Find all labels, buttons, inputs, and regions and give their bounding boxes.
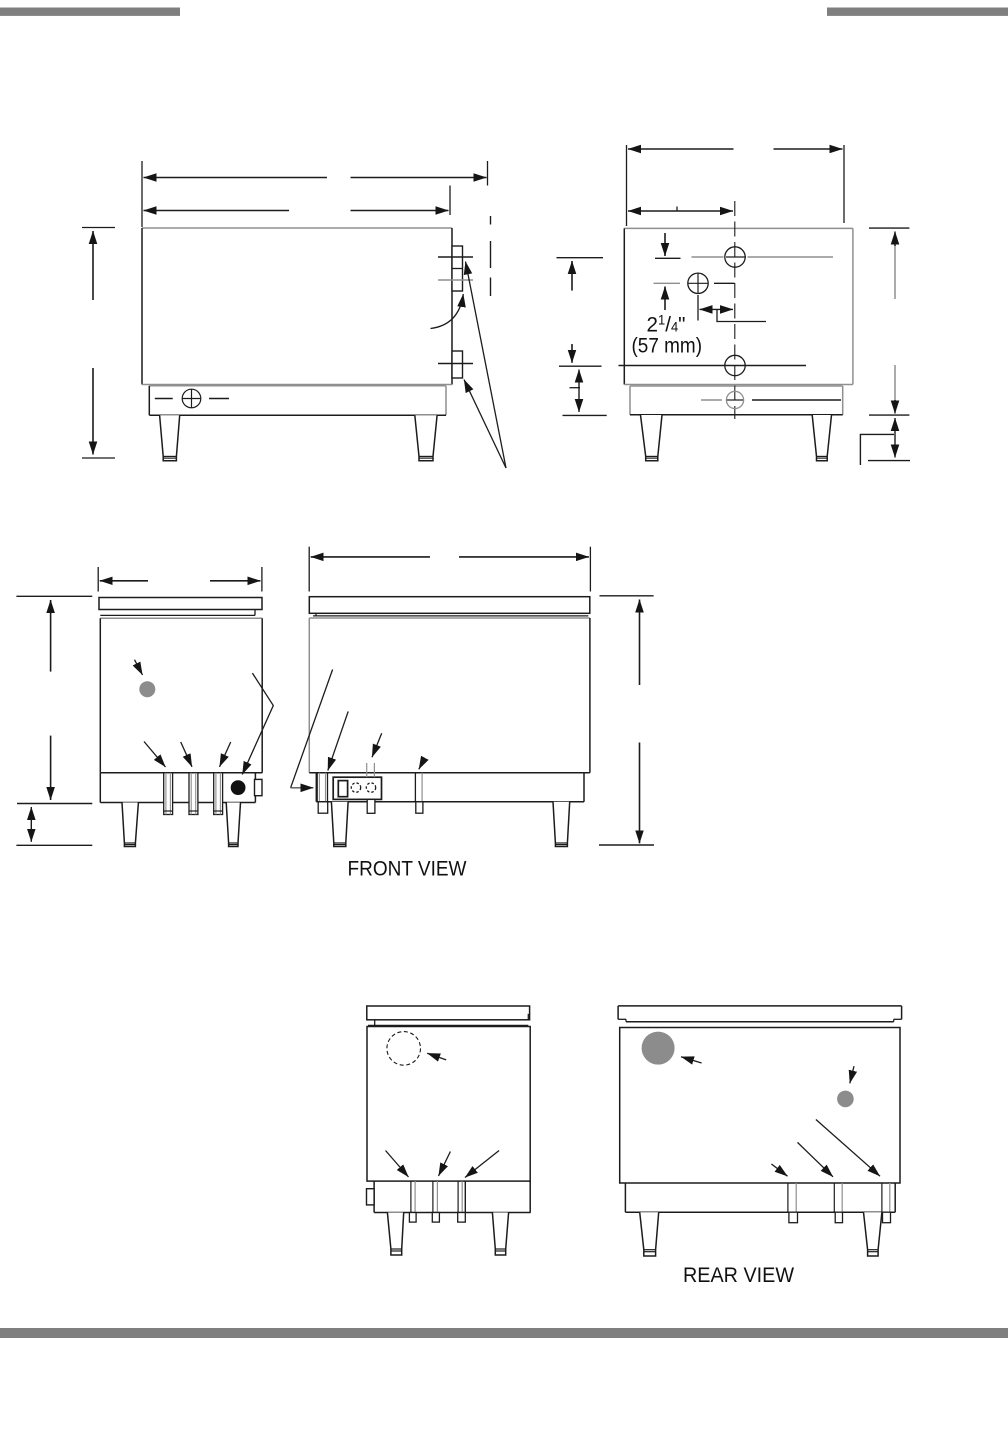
svg-text:(57 mm): (57 mm) [632, 334, 703, 358]
svg-text:FRONT VIEW: FRONT VIEW [348, 857, 468, 881]
svg-text:REAR VIEW: REAR VIEW [683, 1263, 795, 1287]
